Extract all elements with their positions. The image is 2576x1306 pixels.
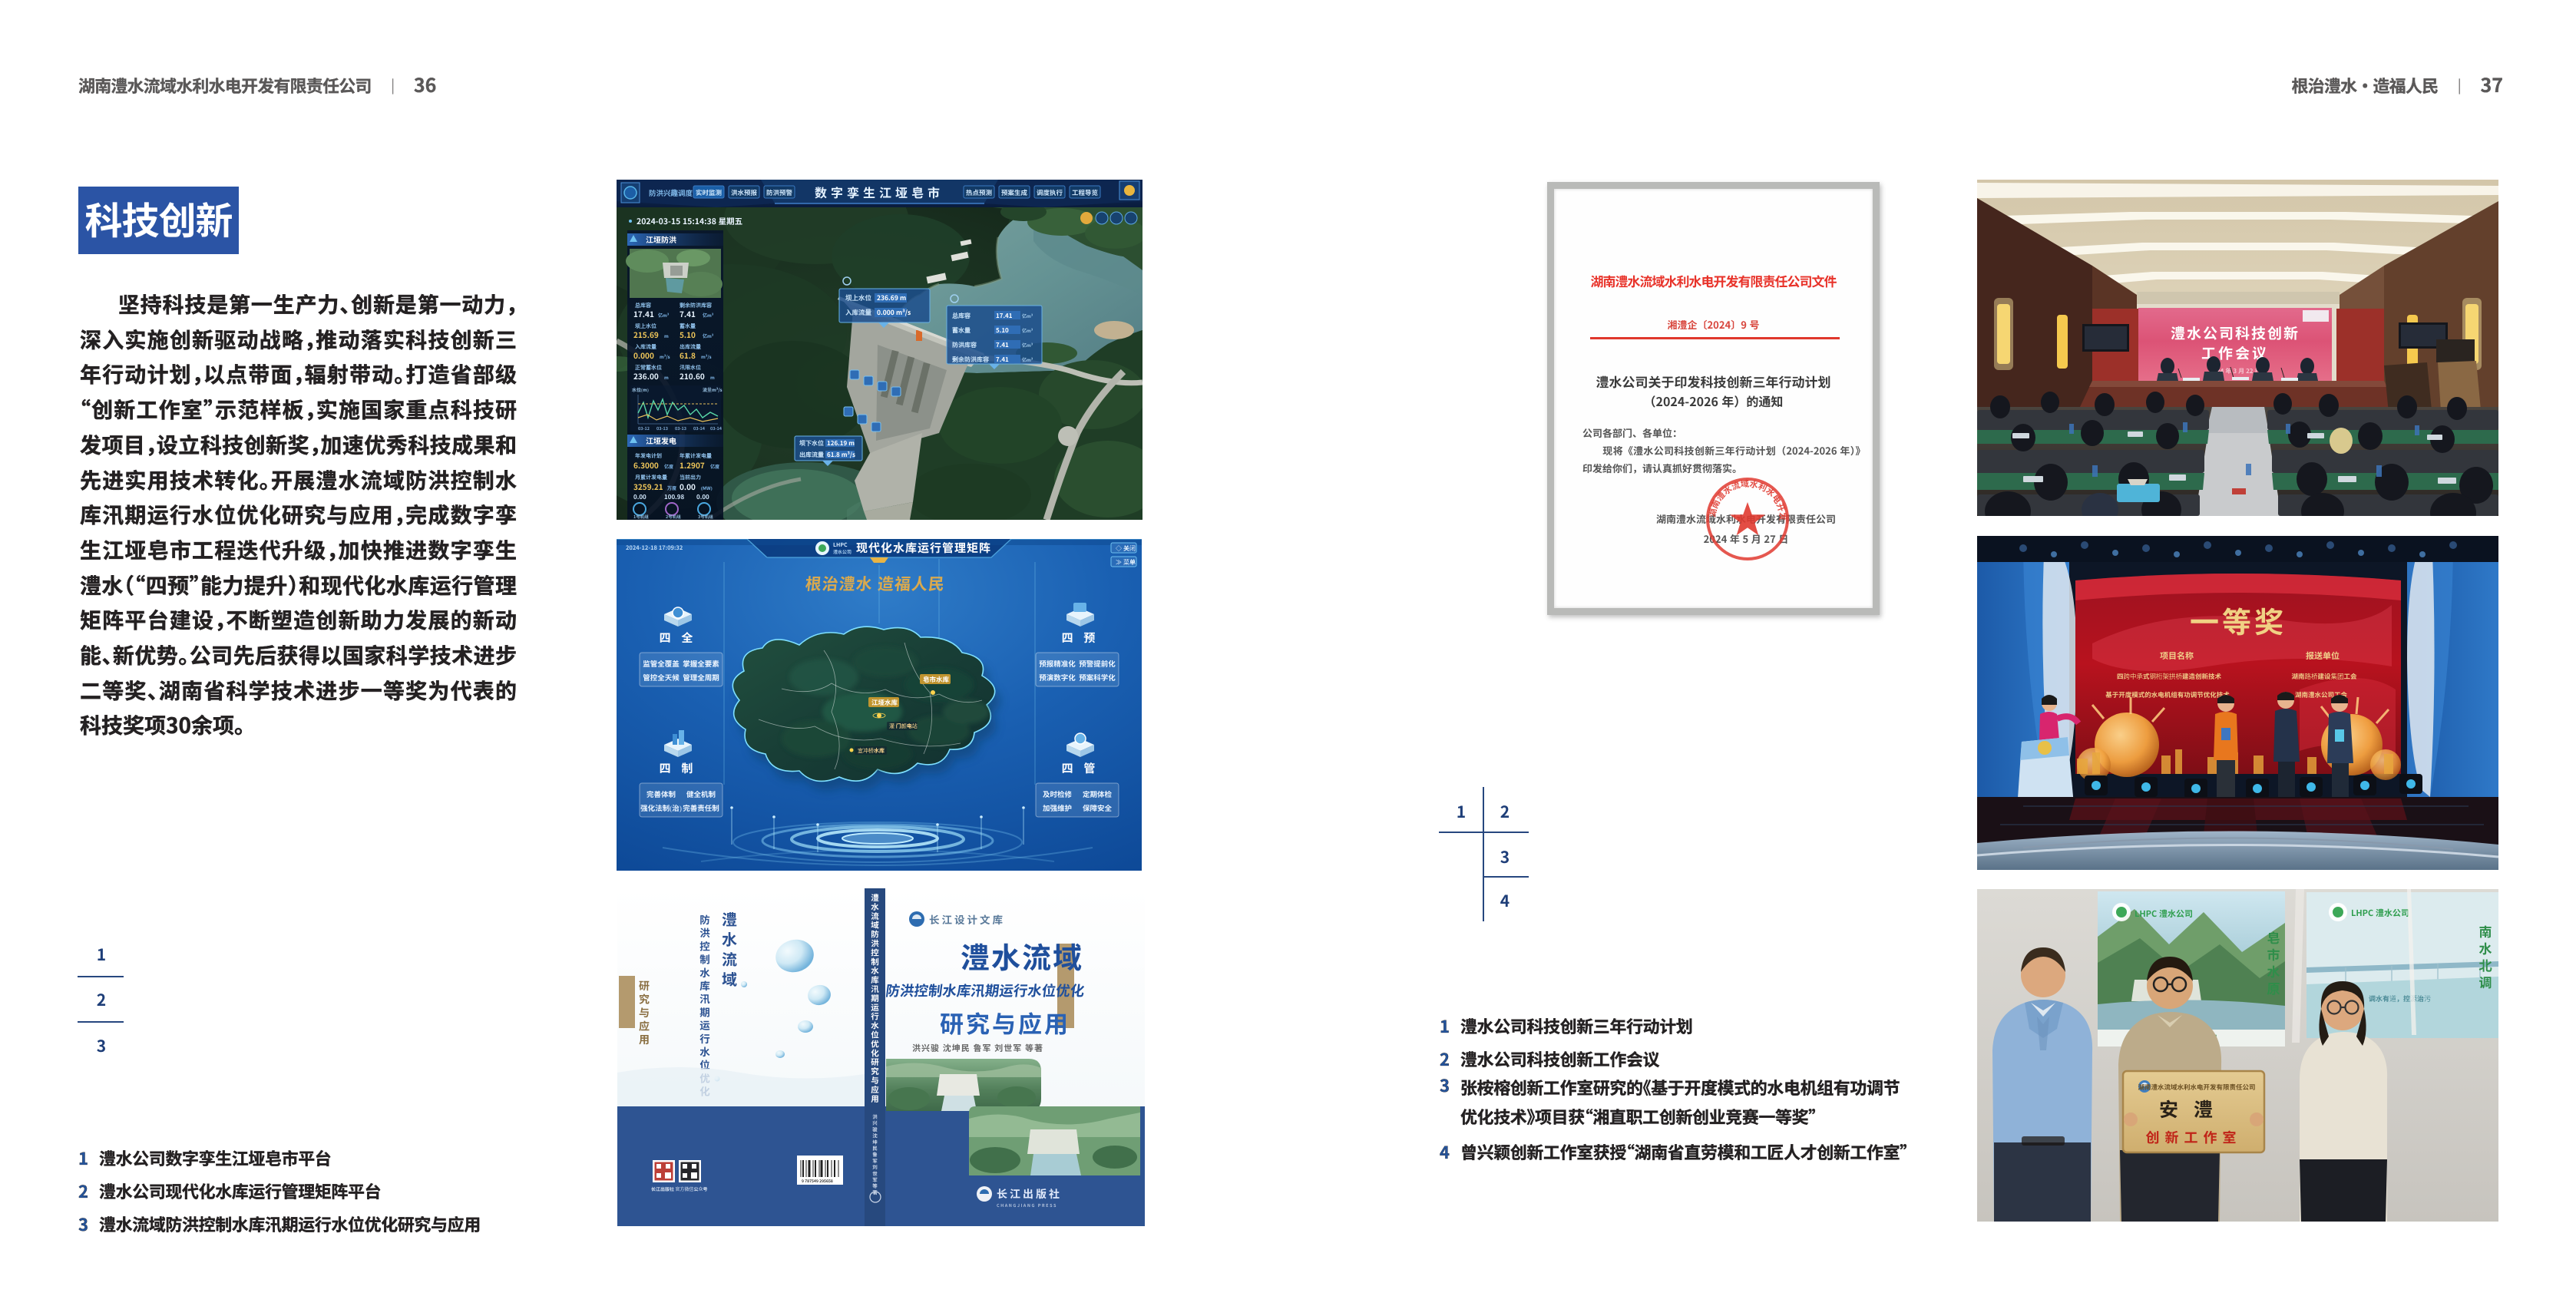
svg-text:南水北调: 南水北调 <box>2479 921 2492 991</box>
svg-text:澧水流域: 澧水流域 <box>961 934 1083 977</box>
svg-text:创新工作室: 创新工作室 <box>2146 1127 2242 1147</box>
svg-text:03-14: 03-14 <box>710 425 723 431</box>
svg-text:四 制: 四 制 <box>660 760 697 776</box>
svg-text:洪兴骏沈坤民鲁军刘世军等著: 洪兴骏沈坤民鲁军刘世军等著 <box>872 1113 878 1195</box>
svg-text:0.00: 0.00 <box>633 493 646 501</box>
svg-text:03-13: 03-13 <box>656 425 668 431</box>
svg-text:1.2907: 1.2907 <box>680 459 705 471</box>
svg-text:四 管: 四 管 <box>1062 760 1100 776</box>
svg-text:加强维护: 加强维护 <box>1043 802 1072 813</box>
svg-text:澧水公司: 澧水公司 <box>833 548 852 555</box>
svg-text:实时监测: 实时监测 <box>696 188 722 197</box>
svg-text:3259.21: 3259.21 <box>633 481 663 492</box>
svg-text:皂市水库: 皂市水库 <box>923 675 950 684</box>
svg-text:调度执行: 调度执行 <box>1037 188 1063 197</box>
svg-text:皂市水原: 皂市水原 <box>2267 927 2280 997</box>
svg-text:03-12: 03-12 <box>638 425 650 431</box>
svg-text:m: m <box>664 374 669 381</box>
svg-text:研究与应用: 研究与应用 <box>940 1005 1070 1040</box>
svg-text:江垭发电: 江垭发电 <box>646 435 676 446</box>
svg-text:保障安全: 保障安全 <box>1083 802 1113 813</box>
svg-text:水位(m): 水位(m) <box>632 386 649 393</box>
svg-text:210.60: 210.60 <box>680 370 705 382</box>
svg-text:剩余防洪库容: 剩余防洪库容 <box>952 355 989 364</box>
svg-text:洪兴骏 沈坤民 鲁军 刘世军 等著: 洪兴骏 沈坤民 鲁军 刘世军 等著 <box>912 1042 1043 1054</box>
svg-text:亿m³: 亿m³ <box>1022 342 1033 349</box>
svg-text:17.41: 17.41 <box>996 312 1013 320</box>
svg-text:长江出版社 官方微信公众号: 长江出版社 官方微信公众号 <box>651 1185 708 1192</box>
svg-text:长江出版社: 长江出版社 <box>997 1186 1062 1202</box>
svg-text:防洪兴趣调度: 防洪兴趣调度 <box>649 187 693 198</box>
svg-text:入库流量: 入库流量 <box>845 308 872 317</box>
svg-text:坝下水位: 坝下水位 <box>799 439 824 448</box>
svg-text:m: m <box>710 374 715 381</box>
svg-text:工程导览: 工程导览 <box>1072 188 1099 197</box>
svg-text:亿m³: 亿m³ <box>703 332 714 339</box>
svg-text:m³/s: m³/s <box>660 353 670 360</box>
svg-text:灌 门颜电站: 灌 门颜电站 <box>889 722 918 730</box>
svg-text:一等奖: 一等奖 <box>2190 599 2287 641</box>
svg-text:坝上水位: 坝上水位 <box>845 293 872 303</box>
svg-text:调水有道，控源治污: 调水有道，控源治污 <box>2369 994 2431 1003</box>
svg-text:100.98: 100.98 <box>664 493 684 501</box>
svg-text:湖南澧水流域水利水电开发有限责任公司: 湖南澧水流域水利水电开发有限责任公司 <box>2138 1083 2255 1092</box>
svg-text:江垭水库: 江垭水库 <box>871 698 898 707</box>
svg-text:215.69: 215.69 <box>633 329 659 340</box>
svg-text:蓄水量: 蓄水量 <box>952 326 971 335</box>
svg-text:5.10: 5.10 <box>996 326 1009 335</box>
svg-text:亿m³: 亿m³ <box>703 312 714 319</box>
svg-text:亿m³: 亿m³ <box>1022 356 1033 363</box>
svg-text:亿m³: 亿m³ <box>1022 312 1033 319</box>
svg-text:预案科学化: 预案科学化 <box>1079 672 1116 683</box>
svg-text:236.69 m: 236.69 m <box>877 293 906 303</box>
svg-text:236.00: 236.00 <box>633 370 659 382</box>
svg-text:亿m³: 亿m³ <box>1022 327 1033 334</box>
svg-text:四 预: 四 预 <box>1062 630 1100 646</box>
svg-text:1号机组: 1号机组 <box>633 514 649 520</box>
svg-text:总库容: 总库容 <box>952 312 971 320</box>
svg-text:现代化水库运行管理矩阵: 现代化水库运行管理矩阵 <box>856 540 991 556</box>
svg-text:完善体制: 完善体制 <box>646 789 676 799</box>
svg-text:0.000 m³/s: 0.000 m³/s <box>877 308 911 317</box>
svg-text:7.41: 7.41 <box>996 341 1009 349</box>
svg-text:流量m³/s: 流量m³/s <box>703 386 723 393</box>
svg-text:根治澧水 造福人民: 根治澧水 造福人民 <box>805 572 947 595</box>
svg-text:掌握全要素: 掌握全要素 <box>683 658 719 669</box>
svg-text:(MW): (MW) <box>701 484 713 491</box>
svg-text:管控全天候: 管控全天候 <box>643 672 680 683</box>
svg-text:监管全覆盖: 监管全覆盖 <box>643 658 680 669</box>
svg-text:m: m <box>664 332 669 339</box>
svg-text:澧水公司科技创新: 澧水公司科技创新 <box>2171 322 2300 343</box>
svg-text:热点预测: 热点预测 <box>966 188 992 197</box>
svg-text:61.8 m³/s: 61.8 m³/s <box>827 451 855 459</box>
svg-text:万度: 万度 <box>666 484 676 491</box>
svg-text:预报精准化: 预报精准化 <box>1039 658 1076 669</box>
svg-text:◇ 关闭: ◇ 关闭 <box>1116 544 1136 553</box>
svg-text:61.8: 61.8 <box>680 349 696 361</box>
svg-text:126.19 m: 126.19 m <box>827 439 855 448</box>
svg-text:长江设计文库: 长江设计文库 <box>929 911 1005 927</box>
svg-text:0.00: 0.00 <box>696 493 709 501</box>
svg-text:预案生成: 预案生成 <box>1001 188 1028 197</box>
svg-text:澧水流域: 澧水流域 <box>722 908 737 990</box>
svg-text:澧水流域防洪控制水库汛期运行水位优化研究与应用: 澧水流域防洪控制水库汛期运行水位优化研究与应用 <box>871 892 879 1105</box>
svg-text:出库流量: 出库流量 <box>799 451 824 459</box>
svg-text:6.3000: 6.3000 <box>633 459 659 471</box>
svg-text:项目名称: 项目名称 <box>2160 650 2194 662</box>
svg-text:03-14: 03-14 <box>693 425 706 431</box>
svg-text:四跨中承式钢桁架拱桥建造创新技术: 四跨中承式钢桁架拱桥建造创新技术 <box>2117 672 2222 681</box>
svg-text:洪水预报: 洪水预报 <box>731 188 758 197</box>
svg-text:及时检修: 及时检修 <box>1043 789 1073 799</box>
svg-text:定期体检: 定期体检 <box>1083 789 1113 799</box>
svg-text:2024-12-18 17:09:32: 2024-12-18 17:09:32 <box>626 544 683 552</box>
svg-text:安澧: 安澧 <box>2159 1095 2228 1122</box>
svg-text:健全机制: 健全机制 <box>686 789 716 799</box>
svg-text:03-13: 03-13 <box>675 425 686 431</box>
svg-text:m³/s: m³/s <box>701 353 712 360</box>
svg-text:防洪控制水库汛期运行水位优化: 防洪控制水库汛期运行水位优化 <box>885 980 1086 1000</box>
svg-text:2号机组: 2号机组 <box>666 514 681 520</box>
svg-text:研究与应用: 研究与应用 <box>639 978 650 1047</box>
svg-text:四 全: 四 全 <box>660 630 697 646</box>
svg-text:报送单位: 报送单位 <box>2306 650 2340 662</box>
svg-text:管理全周期: 管理全周期 <box>683 672 719 683</box>
svg-text:湖南路桥建设集团工会: 湖南路桥建设集团工会 <box>2291 672 2357 681</box>
svg-text:17.41: 17.41 <box>633 308 654 319</box>
svg-text:宜冲桥水库: 宜冲桥水库 <box>858 747 885 755</box>
svg-text:LHPC 澧水公司: LHPC 澧水公司 <box>2135 908 2193 920</box>
svg-text:基于开度模式的水电机组有功调节优化技术: 基于开度模式的水电机组有功调节优化技术 <box>2105 690 2230 699</box>
svg-text:亿m³: 亿m³ <box>658 312 670 319</box>
svg-text:≫ 菜单: ≫ 菜单 <box>1116 558 1136 567</box>
svg-text:5.10: 5.10 <box>680 329 696 340</box>
svg-text:防洪库容: 防洪库容 <box>952 341 977 349</box>
svg-text:数字孪生江垭皂市: 数字孪生江垭皂市 <box>815 183 944 201</box>
svg-text:0.00: 0.00 <box>680 481 696 492</box>
svg-text:CHANGJIANG PRESS: CHANGJIANG PRESS <box>997 1202 1057 1208</box>
svg-text:0.000: 0.000 <box>633 349 654 361</box>
svg-text:防洪预警: 防洪预警 <box>766 188 793 197</box>
svg-text:9 787549 295658: 9 787549 295658 <box>802 1179 833 1184</box>
svg-text:7.41: 7.41 <box>680 308 696 319</box>
svg-text:强化法制(治): 强化法制(治) <box>640 802 682 813</box>
svg-text:预警提前化: 预警提前化 <box>1079 658 1116 669</box>
svg-text:亿度: 亿度 <box>710 463 719 470</box>
svg-text:7.41: 7.41 <box>996 355 1009 364</box>
svg-text:3号机组: 3号机组 <box>698 514 713 520</box>
svg-text:完善责任制: 完善责任制 <box>683 802 719 813</box>
svg-text:亿度: 亿度 <box>664 463 673 470</box>
svg-text:2024-03-15 15:14:38 星期五: 2024-03-15 15:14:38 星期五 <box>637 216 742 227</box>
svg-text:江垭防洪: 江垭防洪 <box>646 233 676 245</box>
svg-text:LHPC 澧水公司: LHPC 澧水公司 <box>2351 907 2409 919</box>
svg-text:预演数字化: 预演数字化 <box>1039 672 1076 683</box>
